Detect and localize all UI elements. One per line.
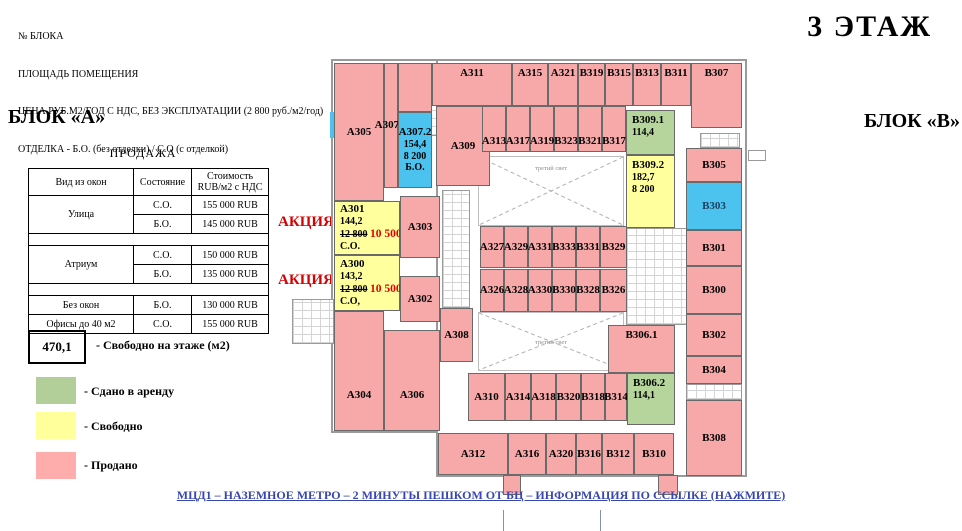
room-В304: В304 xyxy=(686,356,742,384)
room-А303: А303 xyxy=(400,196,440,258)
atrium: третий свет xyxy=(478,156,624,226)
price-cell: 150 000 RUB xyxy=(192,246,269,265)
room-label: А320 xyxy=(549,448,573,461)
stair-core xyxy=(700,133,740,148)
view-cell: Атриум xyxy=(29,246,134,284)
col-header-state: Состояние xyxy=(134,169,192,196)
room-label: А304 xyxy=(347,389,371,402)
stair-core xyxy=(626,228,692,325)
col-header-price: Стоимость RUB/м2 с НДС xyxy=(192,169,269,196)
room-label: В307 xyxy=(705,67,729,80)
room-label: В329 xyxy=(602,241,626,254)
promo-label: АКЦИЯ! xyxy=(278,272,339,289)
state-cell: Б.О. xyxy=(134,265,192,284)
room-label: В317 xyxy=(602,135,626,148)
sales-table: Вид из окон Состояние Стоимость RUB/м2 с… xyxy=(28,168,269,334)
room-label: В310 xyxy=(642,448,666,461)
stair-core xyxy=(442,190,470,308)
room-А329: А329 xyxy=(504,226,528,268)
room-В320: В320 xyxy=(556,373,581,421)
room-label: В306.2 xyxy=(633,377,665,390)
room-label: В319 xyxy=(580,67,604,80)
room-А316: А316 xyxy=(508,433,546,475)
room-В316: В316 xyxy=(576,433,602,475)
room-label: А328 xyxy=(504,284,528,297)
room-В306.1: В306.1 xyxy=(608,325,675,373)
view-cell: Без окон xyxy=(29,296,134,315)
room-label: В312 xyxy=(606,448,630,461)
room-label: А313 xyxy=(482,135,506,148)
room-В326: В326 xyxy=(600,269,627,312)
room-detail-line: 144,2 xyxy=(340,216,363,228)
room-label: В321 xyxy=(578,135,602,148)
room-label: В308 xyxy=(702,432,726,445)
room-В303: В303 xyxy=(686,182,742,230)
room-А301: А301144,212 800 10 500С.О. xyxy=(334,201,400,255)
callout-line xyxy=(600,510,601,531)
atrium-label: третий свет xyxy=(479,339,623,346)
room-detail-line: С.О, xyxy=(340,296,360,308)
room-А315: А315 xyxy=(512,63,548,106)
room-А312: А312 xyxy=(438,433,508,475)
promo-price: 10 500 xyxy=(370,228,402,240)
room-А326: А326 xyxy=(480,269,504,312)
room-detail-line: 12 800 10 500 xyxy=(340,228,402,242)
legend-swatch-sold xyxy=(36,452,76,479)
room-label: А331 xyxy=(528,241,552,254)
header-line: № БЛОКА xyxy=(18,31,323,44)
room-label: В326 xyxy=(602,284,626,297)
room-А307.2: А307.2154,48 200Б.О. xyxy=(398,112,432,188)
stair-core xyxy=(686,384,742,400)
room-В309.2: В309.2182,78 200 xyxy=(626,155,675,228)
callout-line xyxy=(503,510,504,531)
room-label: А326 xyxy=(480,284,504,297)
promo-label: АКЦИЯ! xyxy=(278,214,339,231)
stair-core xyxy=(292,299,334,344)
room-label: В331 xyxy=(576,241,600,254)
room-detail-line: Б.О. xyxy=(405,162,424,174)
room-В317: В317 xyxy=(602,106,626,152)
state-cell: С.О. xyxy=(134,246,192,265)
room-label: А305 xyxy=(347,126,371,139)
room-А311: А311 xyxy=(432,63,512,106)
room-label: А315 xyxy=(518,67,542,80)
room-В309.1: В309.1114,4 xyxy=(626,110,675,155)
room-label: В313 xyxy=(635,67,659,80)
room-В312: В312 xyxy=(602,433,634,475)
room-label: А317 xyxy=(506,135,530,148)
room-label: В328 xyxy=(576,284,600,297)
room-label: А301 xyxy=(340,203,364,216)
separator-row xyxy=(29,284,269,296)
room-label: А303 xyxy=(408,221,432,234)
old-price: 12 800 xyxy=(340,229,368,240)
room-label: В301 xyxy=(702,242,726,255)
atrium: третий свет xyxy=(478,312,624,371)
state-cell: Б.О. xyxy=(134,215,192,234)
state-cell: Б.О. xyxy=(134,296,192,315)
metro-info-link[interactable]: МЦД1 – НАЗЕМНОЕ МЕТРО – 2 МИНУТЫ ПЕШКОМ … xyxy=(177,488,786,502)
room-label: В306.1 xyxy=(625,329,657,342)
atrium-label: третий свет xyxy=(479,165,623,172)
floor-title: 3 ЭТАЖ xyxy=(807,10,932,44)
room-А305: А305 xyxy=(334,63,384,201)
floor-plan-page: № БЛОКА ПЛОЩАДЬ ПОМЕЩЕНИЯ ЦЕНА РУБ.М2/ГО… xyxy=(0,0,962,531)
room-label: А330 xyxy=(528,284,552,297)
room-А320: А320 xyxy=(546,433,576,475)
room-В306.2: В306.2114,1 xyxy=(627,373,675,425)
room-label: В315 xyxy=(607,67,631,80)
room-label: В309.2 xyxy=(632,159,664,172)
room-label: А306 xyxy=(400,389,424,402)
room-label: В330 xyxy=(552,284,576,297)
room-А318: А318 xyxy=(531,373,556,421)
room-label: В311 xyxy=(664,67,687,80)
room-label: В304 xyxy=(702,364,726,377)
legend-label-sold: - Продано xyxy=(84,458,138,473)
room-label: А312 xyxy=(461,448,485,461)
footer: МЦД1 – НАЗЕМНОЕ МЕТРО – 2 МИНУТЫ ПЕШКОМ … xyxy=(0,486,962,504)
room-detail-line: 12 800 10 500 xyxy=(340,283,402,297)
separator-row xyxy=(29,234,269,246)
price-cell: 145 000 RUB xyxy=(192,215,269,234)
room-А328: А328 xyxy=(504,269,528,312)
room-label: В316 xyxy=(577,448,601,461)
room-А313: А313 xyxy=(482,106,506,152)
room-В328: В328 xyxy=(576,269,600,312)
room-В301: В301 xyxy=(686,230,742,266)
room-label: А327 xyxy=(480,241,504,254)
room-label: А316 xyxy=(515,448,539,461)
legend-label-free: - Свободно xyxy=(84,419,143,434)
room-label: А300 xyxy=(340,258,364,271)
room-А327: А327 xyxy=(480,226,504,268)
price-cell: 135 000 RUB xyxy=(192,265,269,284)
room-label: В305 xyxy=(702,159,726,172)
room-В319: В319 xyxy=(578,63,605,106)
legend-swatch-free xyxy=(36,412,76,439)
free-area-box: 470,1 xyxy=(28,330,86,364)
room-В318: В318 xyxy=(581,373,605,421)
room-А310: А310 xyxy=(468,373,505,421)
room-В313: В313 xyxy=(633,63,661,106)
room-label: А329 xyxy=(504,241,528,254)
room-А319: А319 xyxy=(530,106,554,152)
room-detail-line: 182,7 xyxy=(632,172,655,184)
header-line: ПЛОЩАДЬ ПОМЕЩЕНИЯ xyxy=(18,69,323,82)
block-b-title: БЛОК «В» xyxy=(864,110,960,133)
room-А302: А302 xyxy=(400,276,440,322)
room-В330: В330 xyxy=(552,269,576,312)
sales-table-title: ПРОДАЖА xyxy=(28,146,258,161)
legend-swatch-leased xyxy=(36,377,76,404)
free-area-label: - Свободно на этаже (м2) xyxy=(96,338,230,353)
room-detail-line: С.О. xyxy=(340,241,360,253)
room-В323: В323 xyxy=(554,106,578,152)
room-label: В320 xyxy=(557,391,581,404)
room-А317: А317 xyxy=(506,106,530,152)
room-label: В323 xyxy=(554,135,578,148)
col-header-view: Вид из окон xyxy=(29,169,134,196)
room-label: А311 xyxy=(460,67,484,80)
room-А307.1: А307.1 xyxy=(384,63,398,188)
room-label: А308 xyxy=(444,329,468,342)
room-А330: А330 xyxy=(528,269,552,312)
lift-callout xyxy=(748,150,766,161)
room-А306: А306 xyxy=(384,330,440,431)
room-label: В318 xyxy=(581,391,605,404)
room-area xyxy=(398,63,432,112)
room-А331: А331 xyxy=(528,226,552,268)
room-А314: А314 xyxy=(505,373,531,421)
room-А321: А321 xyxy=(548,63,578,106)
legend-label-leased: - Сдано в аренду xyxy=(84,384,174,399)
state-cell: С.О. xyxy=(134,315,192,334)
room-В311: В311 xyxy=(661,63,691,106)
room-В307: В307 xyxy=(691,63,742,128)
room-label: В300 xyxy=(702,284,726,297)
promo-price: 10 500 xyxy=(370,283,402,295)
room-label: А314 xyxy=(506,391,530,404)
room-В305: В305 xyxy=(686,148,742,182)
room-В308: В308 xyxy=(686,400,742,476)
room-А308: А308 xyxy=(440,308,473,362)
room-label: А319 xyxy=(530,135,554,148)
room-detail-line: 8 200 xyxy=(632,184,655,196)
room-А304: А304 xyxy=(334,311,384,431)
room-label: А302 xyxy=(408,293,432,306)
room-В302: В302 xyxy=(686,314,742,356)
room-detail-line: 8 200 xyxy=(404,151,427,163)
room-detail-line: 114,4 xyxy=(632,127,654,139)
room-В333: В333 xyxy=(552,226,576,268)
room-label: В309.1 xyxy=(632,114,664,127)
room-В314: В314 xyxy=(605,373,627,421)
room-В321: В321 xyxy=(578,106,602,152)
room-label: А309 xyxy=(451,140,475,153)
room-label: А310 xyxy=(474,391,498,404)
block-a-title: БЛОК «А» xyxy=(8,106,105,129)
price-cell: 155 000 RUB xyxy=(192,196,269,215)
room-В310: В310 xyxy=(634,433,674,475)
room-label: В303 xyxy=(702,200,726,213)
room-label: А318 xyxy=(531,391,555,404)
price-cell: 155 000 RUB xyxy=(192,315,269,334)
room-label: В302 xyxy=(702,329,726,342)
room-В300: В300 xyxy=(686,266,742,314)
view-cell: Улица xyxy=(29,196,134,234)
room-В315: В315 xyxy=(605,63,633,106)
room-detail-line: 114,1 xyxy=(633,390,655,402)
room-В331: В331 xyxy=(576,226,600,268)
room-А300: А300143,212 800 10 500С.О, xyxy=(334,255,400,311)
room-label: А307.2 xyxy=(399,126,432,139)
old-price: 12 800 xyxy=(340,284,368,295)
state-cell: С.О. xyxy=(134,196,192,215)
room-detail-line: 154,4 xyxy=(404,139,427,151)
room-label: А321 xyxy=(551,67,575,80)
room-В329: В329 xyxy=(600,226,627,268)
room-detail-line: 143,2 xyxy=(340,271,363,283)
room-label: В333 xyxy=(552,241,576,254)
room-label: В314 xyxy=(604,391,628,404)
price-cell: 130 000 RUB xyxy=(192,296,269,315)
